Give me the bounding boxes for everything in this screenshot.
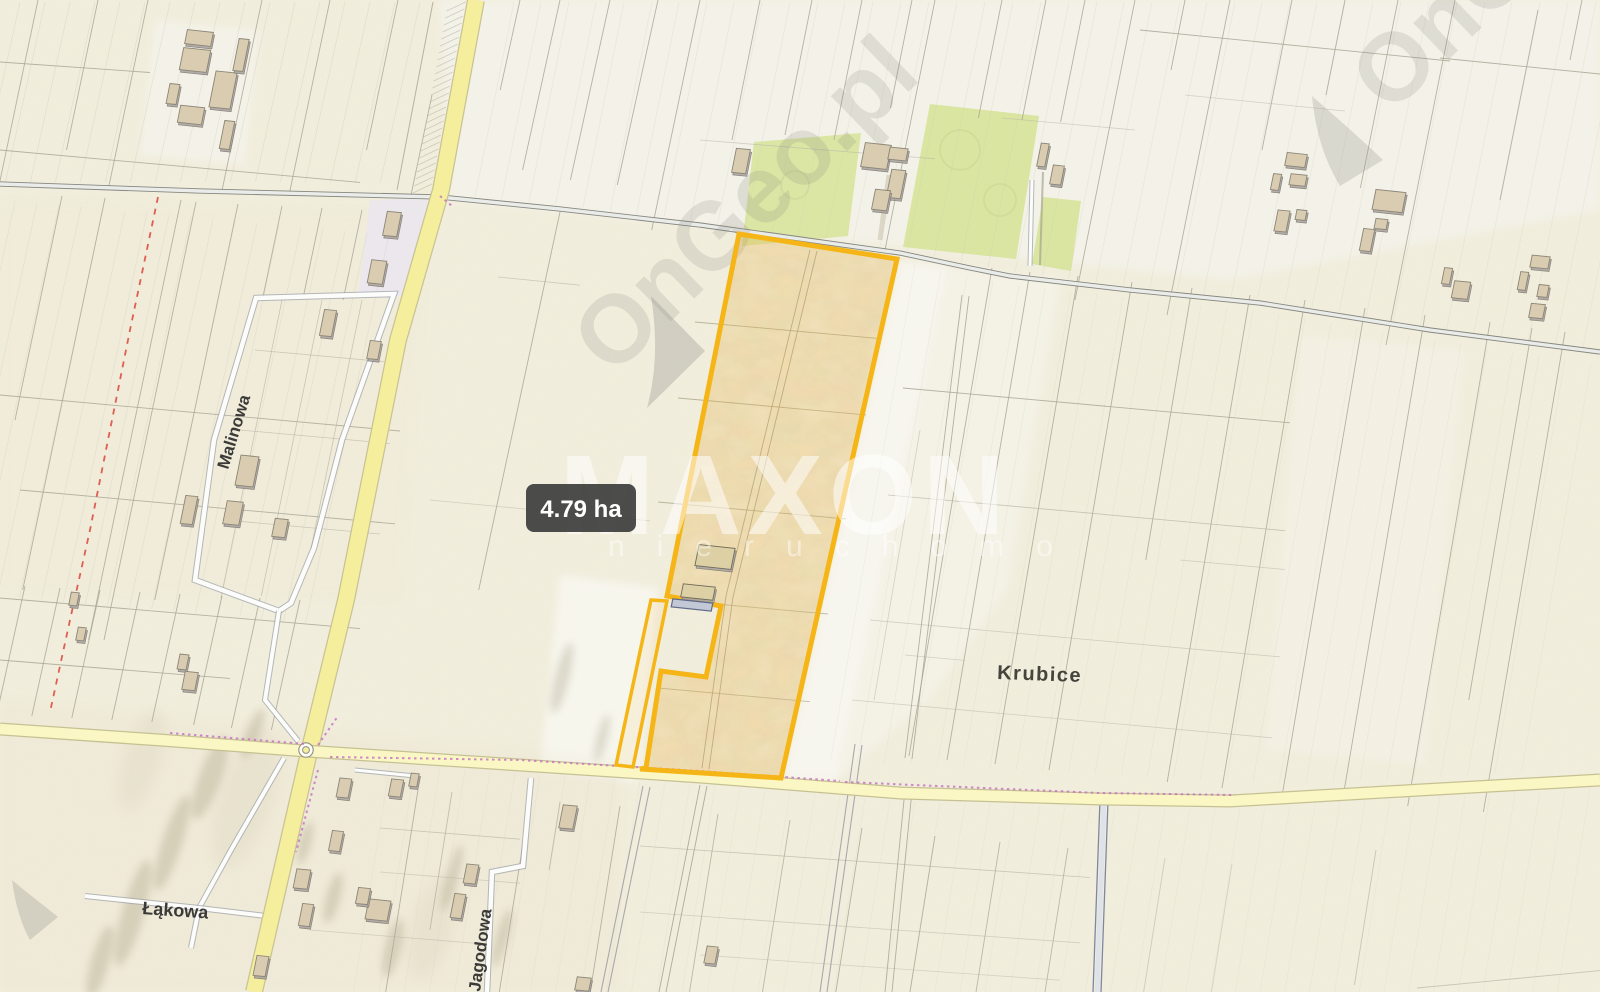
svg-text:nieruchomo: nieruchomo [608, 530, 1085, 563]
svg-text:Krubice: Krubice [997, 662, 1083, 687]
svg-text:4.79 ha: 4.79 ha [540, 496, 622, 523]
